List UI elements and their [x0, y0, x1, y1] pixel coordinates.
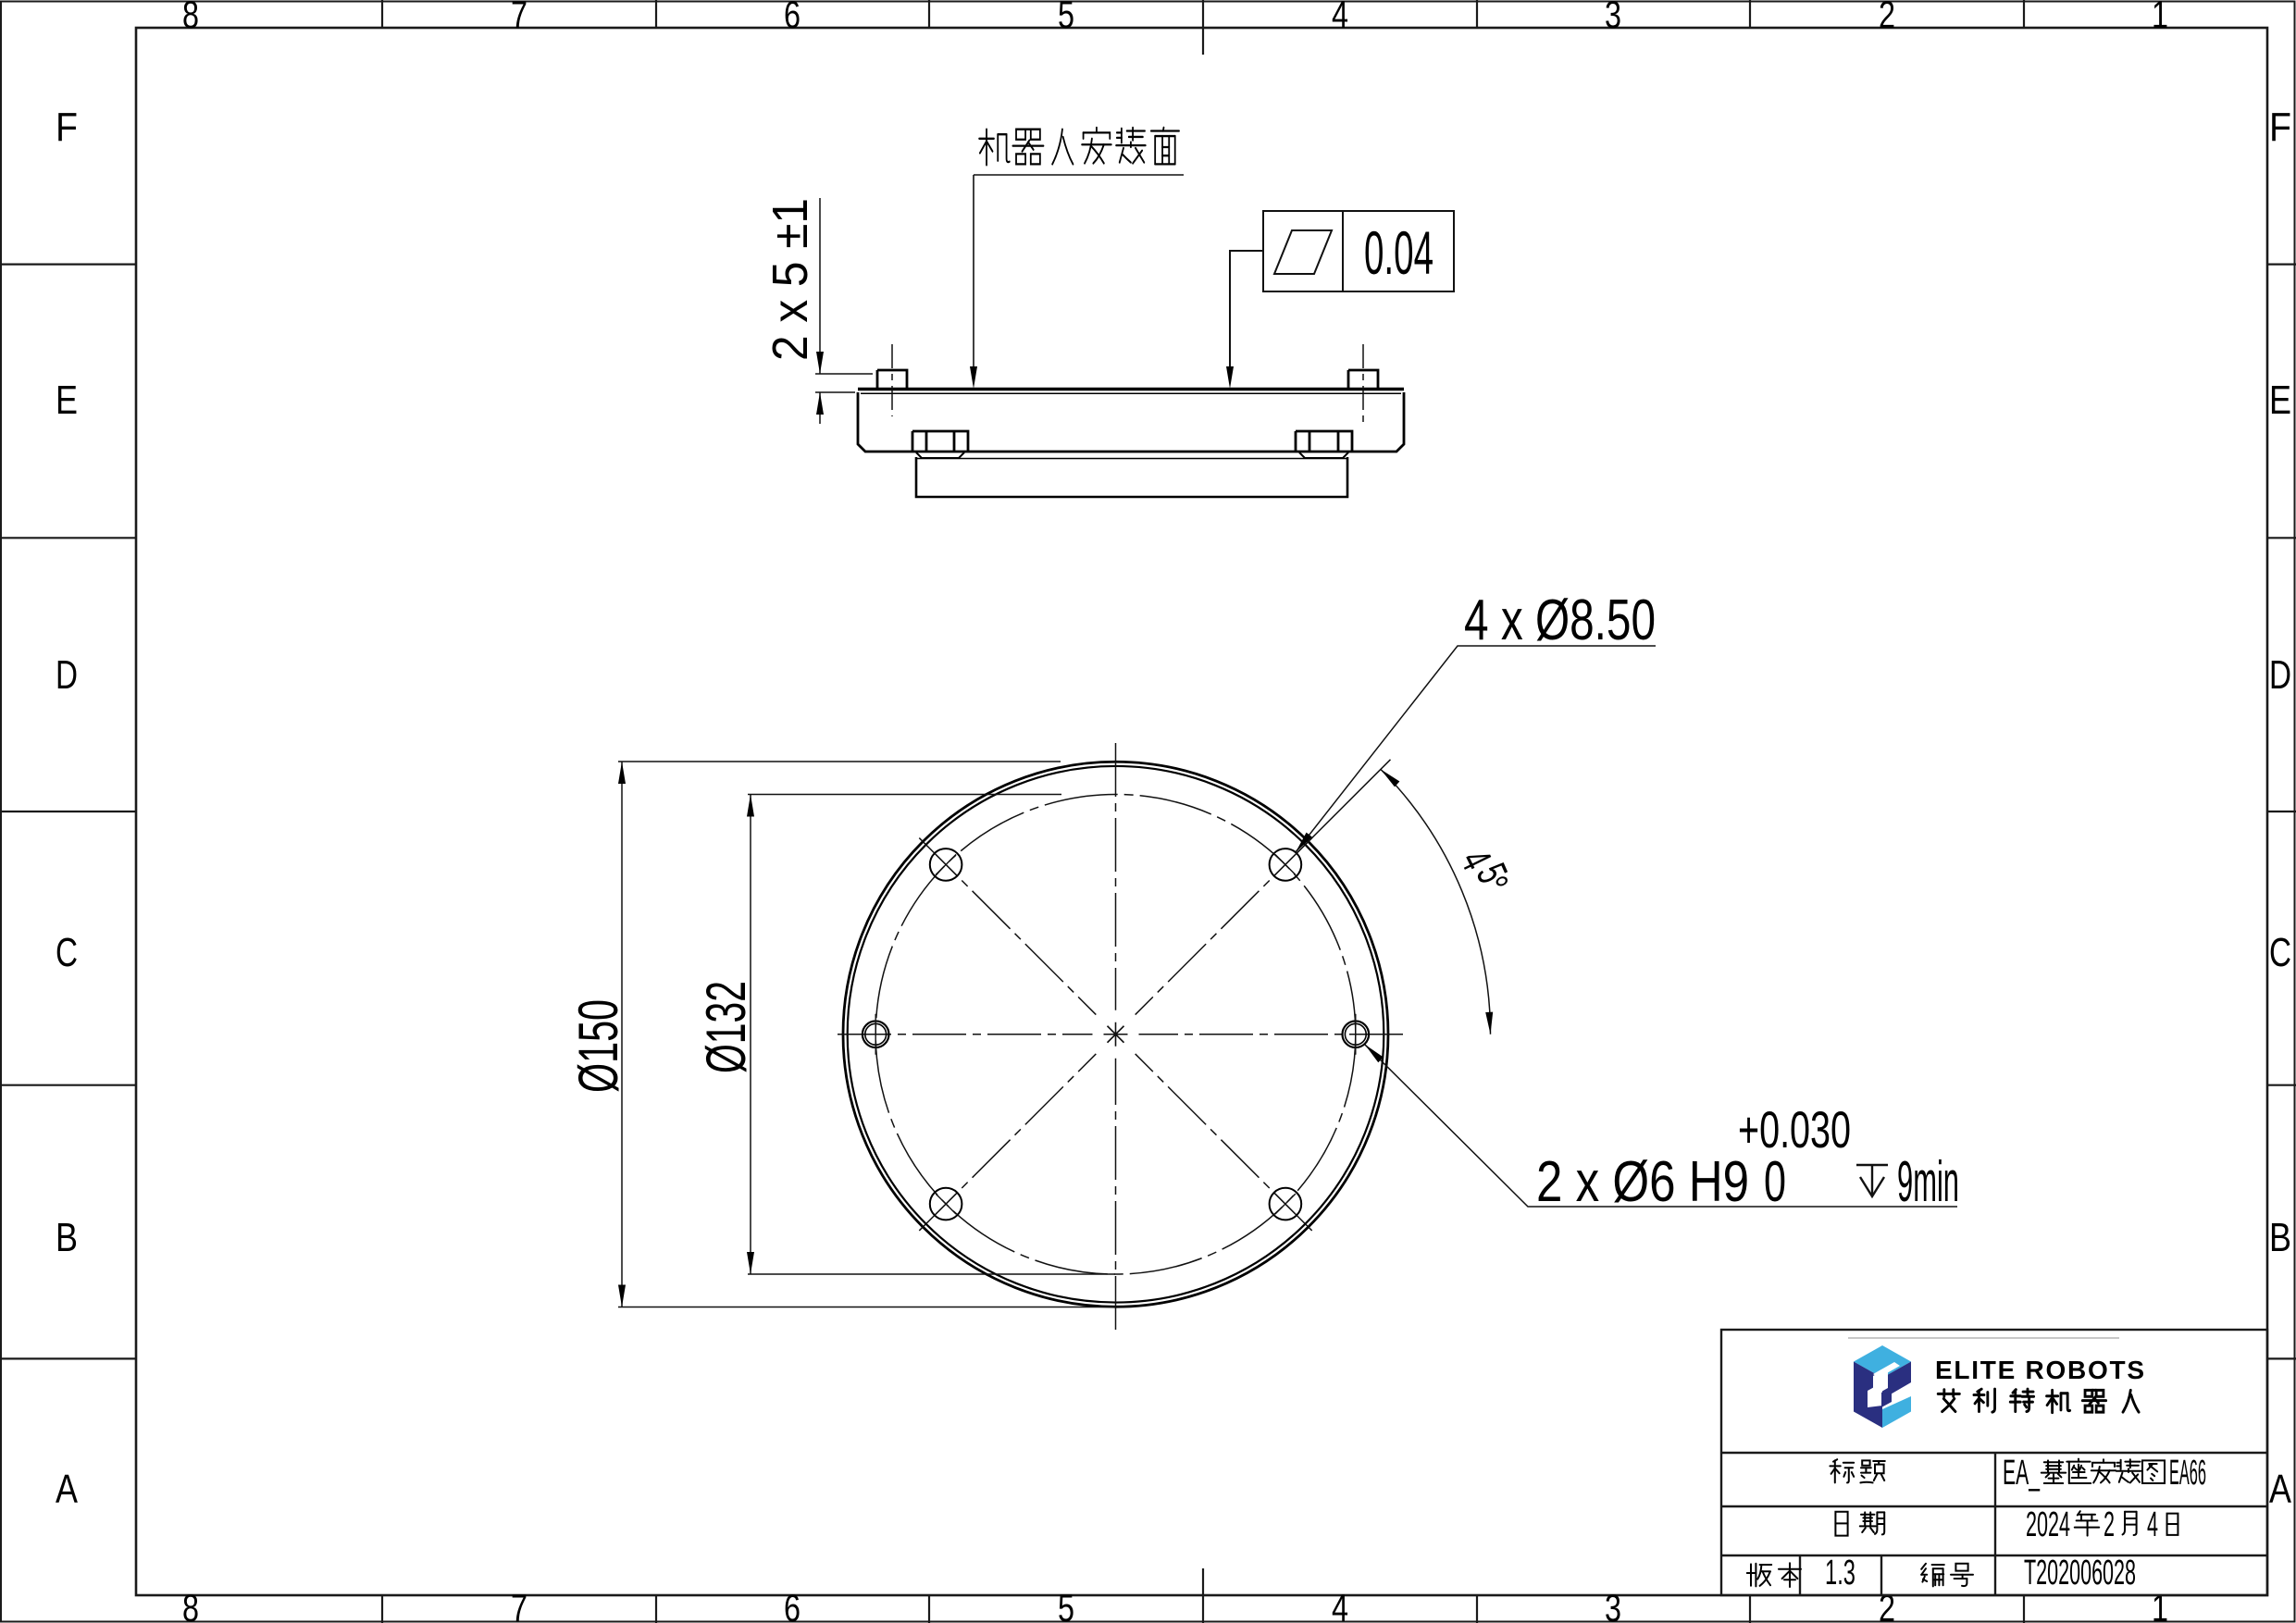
- svg-text:5: 5: [1058, 1586, 1074, 1623]
- svg-text:B: B: [56, 1215, 78, 1260]
- svg-text:1: 1: [2152, 1586, 2168, 1623]
- svg-text:7: 7: [511, 0, 527, 36]
- svg-text:A: A: [56, 1467, 79, 1512]
- svg-text:T202006028: T202006028: [2024, 1554, 2136, 1592]
- svg-text:3: 3: [1605, 0, 1621, 36]
- svg-text:9min: 9min: [1897, 1150, 1959, 1214]
- svg-text:4: 4: [2147, 1505, 2158, 1544]
- svg-text:1: 1: [2152, 0, 2168, 36]
- svg-text:2 x Ø6 H9: 2 x Ø6 H9: [1536, 1150, 1749, 1214]
- svg-text:+0.030: +0.030: [1738, 1100, 1851, 1158]
- svg-text:B: B: [2269, 1215, 2291, 1260]
- svg-text:2 x 5 ±1: 2 x 5 ±1: [763, 198, 818, 361]
- svg-text:3: 3: [1605, 1586, 1621, 1623]
- svg-text:D: D: [2269, 652, 2291, 698]
- svg-text:2: 2: [1879, 0, 1895, 36]
- svg-text:C: C: [2269, 930, 2291, 975]
- svg-text:2024: 2024: [2026, 1505, 2070, 1544]
- svg-text:6: 6: [784, 1586, 800, 1623]
- svg-text:ELITE ROBOTS: ELITE ROBOTS: [1935, 1356, 2144, 1384]
- svg-text:F: F: [2269, 105, 2291, 150]
- svg-text:4: 4: [1332, 1586, 1348, 1623]
- svg-text:C: C: [56, 930, 78, 975]
- svg-text:5: 5: [1058, 0, 1074, 36]
- svg-text:EA66: EA66: [2169, 1454, 2206, 1493]
- svg-text:4 x Ø8.50: 4 x Ø8.50: [1464, 588, 1656, 652]
- svg-text:8: 8: [182, 0, 199, 36]
- svg-text:A: A: [2269, 1467, 2292, 1512]
- svg-text:F: F: [56, 105, 78, 150]
- svg-text:2: 2: [2104, 1505, 2115, 1544]
- svg-text:1.3: 1.3: [1825, 1554, 1855, 1592]
- svg-text:0: 0: [1764, 1150, 1786, 1214]
- svg-text:E: E: [2269, 378, 2291, 423]
- svg-text:6: 6: [784, 0, 800, 36]
- svg-text:D: D: [56, 652, 78, 698]
- svg-text:Ø132: Ø132: [695, 981, 757, 1073]
- svg-text:Ø150: Ø150: [567, 999, 629, 1093]
- svg-text:0.04: 0.04: [1364, 218, 1433, 287]
- svg-text:8: 8: [182, 1586, 199, 1623]
- svg-text:7: 7: [511, 1586, 527, 1623]
- svg-text:E: E: [56, 378, 78, 423]
- svg-text:EA_: EA_: [2003, 1454, 2040, 1493]
- svg-text:4: 4: [1332, 0, 1348, 36]
